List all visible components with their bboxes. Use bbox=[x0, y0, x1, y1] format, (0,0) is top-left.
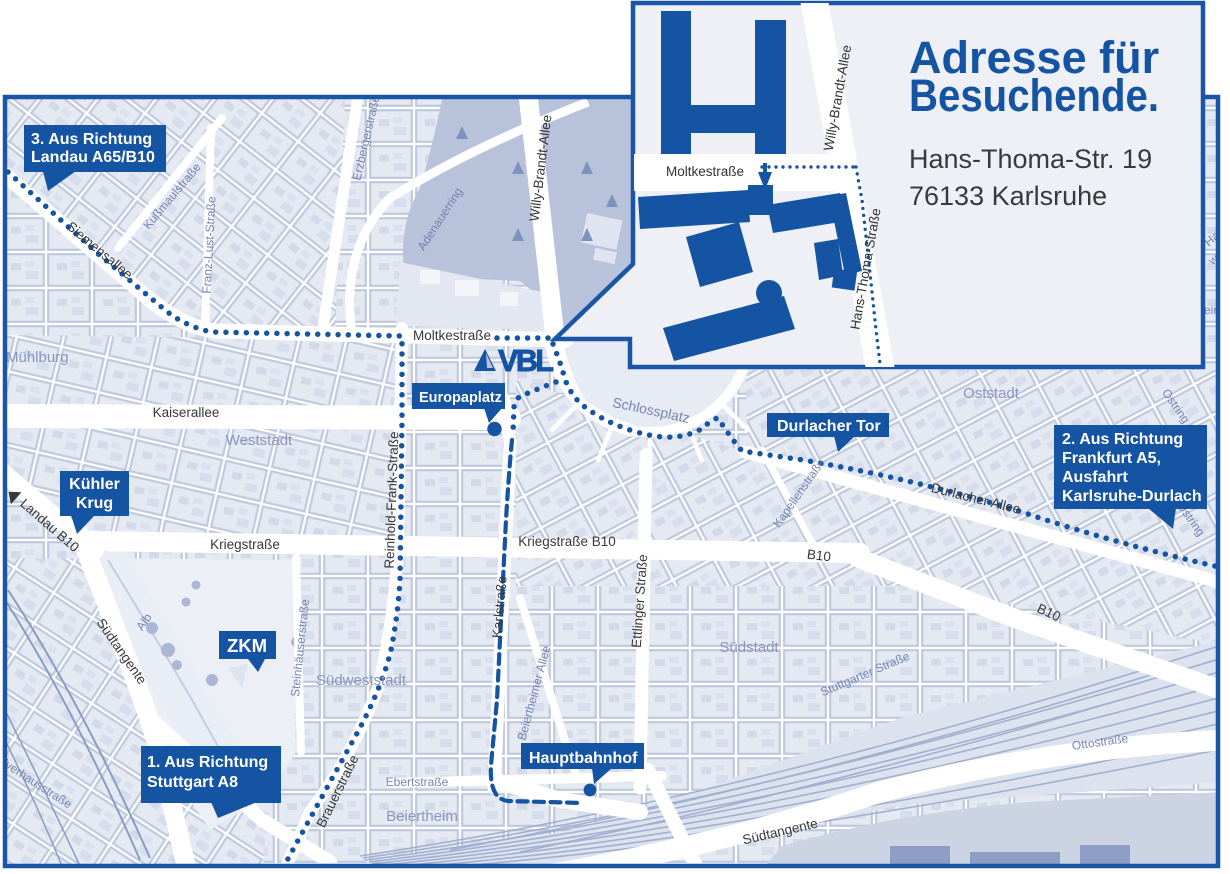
svg-text:Krug: Krug bbox=[76, 495, 113, 512]
svg-text:Durlacher Tor: Durlacher Tor bbox=[777, 418, 881, 435]
svg-text:Mühlburg: Mühlburg bbox=[6, 349, 69, 366]
svg-text:Hauptbahnhof: Hauptbahnhof bbox=[529, 750, 638, 767]
svg-text:Oststadt: Oststadt bbox=[963, 385, 1020, 402]
svg-text:Südweststadt: Südweststadt bbox=[316, 672, 407, 689]
svg-text:Stuttgart A8: Stuttgart A8 bbox=[147, 774, 238, 791]
svg-text:VBL: VBL bbox=[498, 344, 553, 378]
svg-text:3. Aus Richtung: 3. Aus Richtung bbox=[31, 131, 152, 148]
svg-text:Moltkestraße: Moltkestraße bbox=[666, 164, 744, 179]
svg-text:Moltkestraße: Moltkestraße bbox=[413, 328, 491, 343]
svg-text:Kaiserallee: Kaiserallee bbox=[153, 405, 220, 420]
svg-text:Europaplatz: Europaplatz bbox=[419, 390, 502, 406]
svg-text:Hans-Thoma-Str. 19: Hans-Thoma-Str. 19 bbox=[909, 144, 1152, 174]
svg-text:Ausfahrt: Ausfahrt bbox=[1062, 469, 1128, 486]
svg-text:Kühler: Kühler bbox=[69, 476, 120, 493]
svg-text:Kriegstraße: Kriegstraße bbox=[210, 537, 280, 552]
svg-text:1. Aus Richtung: 1. Aus Richtung bbox=[147, 754, 268, 771]
svg-text:Ebertstraße: Ebertstraße bbox=[386, 775, 449, 789]
svg-text:B10: B10 bbox=[806, 547, 832, 565]
svg-text:Karlsruhe-Durlach: Karlsruhe-Durlach bbox=[1062, 488, 1202, 505]
svg-text:Südstadt: Südstadt bbox=[719, 639, 779, 656]
svg-text:ZKM: ZKM bbox=[227, 635, 267, 656]
svg-text:Landau A65/B10: Landau A65/B10 bbox=[31, 149, 155, 166]
svg-text:Frankfurt A5,: Frankfurt A5, bbox=[1062, 450, 1161, 467]
svg-text:2. Aus Richtung: 2. Aus Richtung bbox=[1062, 431, 1183, 448]
svg-text:76133 Karlsruhe: 76133 Karlsruhe bbox=[909, 181, 1107, 211]
svg-text:Besuchende.: Besuchende. bbox=[909, 70, 1159, 121]
svg-text:Kriegstraße B10: Kriegstraße B10 bbox=[518, 534, 616, 549]
svg-text:Beiertheim: Beiertheim bbox=[386, 808, 458, 825]
svg-text:Weststadt: Weststadt bbox=[226, 432, 293, 449]
